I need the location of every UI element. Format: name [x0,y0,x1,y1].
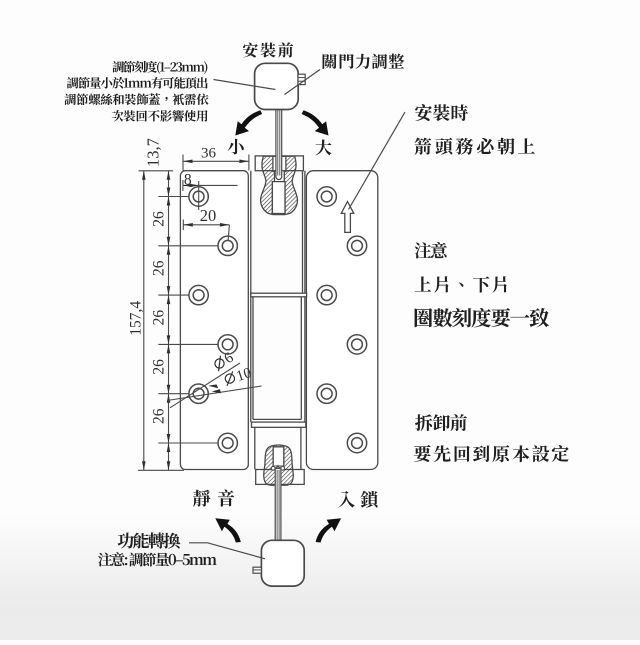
svg-text:安裝時: 安裝時 [415,99,469,125]
svg-text:次裝回不影響使用: 次裝回不影響使用 [111,106,208,124]
svg-text:26: 26 [150,260,167,276]
svg-text:安裝前: 安裝前 [242,38,293,61]
svg-text:小: 小 [228,133,245,158]
svg-text:要先回到原本設定: 要先回到原本設定 [413,440,569,466]
svg-text:圈數刻度要一致: 圈數刻度要一致 [413,301,550,331]
svg-text:靜音: 靜音 [193,485,236,511]
svg-text:26: 26 [150,408,167,424]
svg-text:調節螺絲和裝飾蓋，衹需依: 調節螺絲和裝飾蓋，衹需依 [64,90,208,108]
svg-text:26: 26 [150,359,167,375]
svg-text:拆卸前: 拆卸前 [414,409,468,435]
svg-text:調節量小於1mm有可能頂出: 調節量小於1mm有可能頂出 [67,74,209,92]
svg-text:26: 26 [150,310,167,326]
svg-text:注意: 調節量0–5mm: 注意: 調節量0–5mm [98,549,218,570]
svg-text:26: 26 [150,211,167,227]
svg-text:上片、下片: 上片、下片 [414,271,509,296]
svg-text:20: 20 [200,206,217,225]
svg-text:關門力調整: 關門力調整 [321,48,404,72]
svg-text:箭頭務必朝上: 箭頭務必朝上 [414,133,536,159]
svg-text:入鎖: 入鎖 [337,486,378,512]
svg-text:13,7: 13,7 [143,138,162,167]
svg-text:注意: 注意 [414,237,448,262]
svg-text:157,4: 157,4 [127,301,144,336]
svg-text:大: 大 [315,134,332,159]
svg-text:36: 36 [201,145,217,161]
svg-text:8: 8 [184,171,192,188]
